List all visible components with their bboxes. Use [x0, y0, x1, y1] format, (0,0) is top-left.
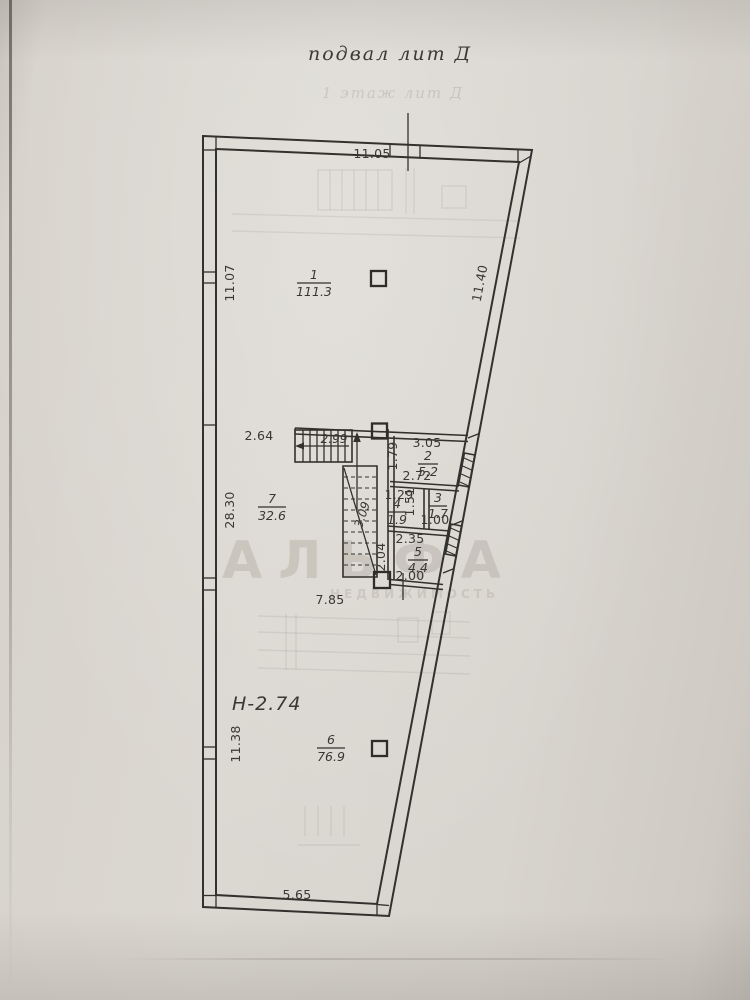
watermark: АЛЬФА НЕДВИЖИМОСТЬ [222, 531, 517, 601]
wall-opening-hatch-upper [458, 453, 474, 487]
room-area: 5.2 [418, 464, 438, 479]
dim-room7-top: 2.64 [244, 428, 273, 443]
dim-room5-depth: 2.04 [373, 542, 388, 571]
room-number: 5 [414, 544, 422, 559]
room-area: 1.7 [428, 506, 448, 521]
room-number: 7 [268, 491, 276, 506]
room-number: 2 [424, 448, 432, 463]
watermark-line2: НЕДВИЖИМОСТЬ [330, 587, 499, 601]
room-label-7: 7 32.6 [258, 491, 286, 523]
watermark-line1: АЛЬФА [222, 531, 517, 591]
room-number: 1 [310, 267, 318, 282]
floor-plan-drawing: подвал лит Д 1 этаж лит Д АЛЬФА НЕДВИЖИМ… [0, 0, 750, 1000]
dim-room2-depth: 1.79 [385, 441, 400, 470]
room-number: 4 [393, 496, 401, 511]
room-area: 32.6 [258, 508, 286, 523]
dim-left-lower: 11.38 [228, 725, 243, 762]
room-area: 76.9 [317, 749, 345, 764]
bleed-through-bottom-block [298, 806, 360, 845]
room-number: 6 [327, 732, 335, 747]
column [372, 741, 387, 756]
room-label-3: 3 1.7 [428, 490, 448, 521]
dim-left-upper: 11.07 [222, 264, 237, 301]
room-area: 1.9 [387, 512, 407, 527]
stair-arrow-left [295, 443, 304, 450]
dim-stairs-upper: 2.99 [321, 432, 348, 446]
room-number: 3 [434, 490, 442, 505]
bleed-through-mid-block [258, 612, 470, 674]
bleed-through-top-block [232, 168, 520, 238]
room-label-2: 2 5.2 [418, 448, 438, 479]
ceiling-height-note: Н-2.74 [232, 693, 301, 715]
room-label-6: 6 76.9 [317, 732, 345, 764]
dim-right-upper: 11.40 [469, 263, 491, 302]
room-label-1: 1 111.3 [296, 267, 332, 299]
bleed-through-title: 1 этаж лит Д [322, 84, 464, 102]
dim-top-width: 11.05 [353, 146, 390, 161]
dim-corridor: 7.85 [315, 592, 344, 607]
dim-left-mid: 28.30 [222, 491, 237, 528]
scanned-floor-plan-photo: подвал лит Д 1 этаж лит Д АЛЬФА НЕДВИЖИМ… [0, 0, 750, 1000]
plan-title: подвал лит Д [308, 43, 472, 65]
column [371, 271, 386, 286]
room-area: 4.4 [408, 560, 428, 575]
dim-bottom-width: 5.65 [282, 887, 311, 902]
room-area: 111.3 [296, 284, 332, 299]
